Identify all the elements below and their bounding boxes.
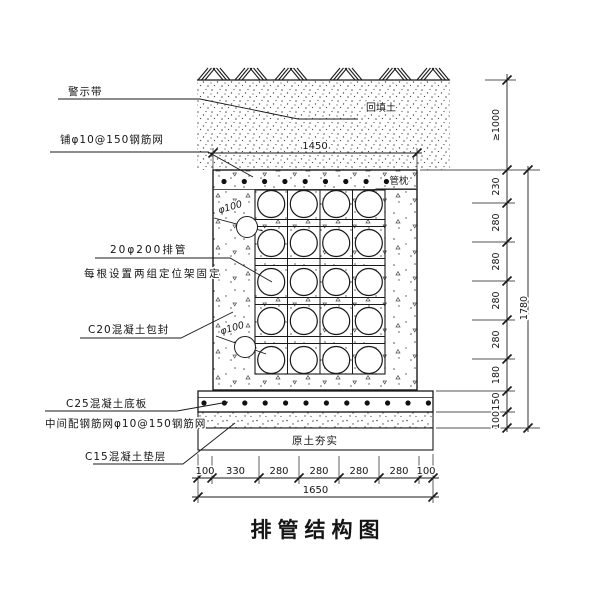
label-pipe-pillow: 管枕 [389,175,409,187]
label-pipes-line1: 20φ200排管 [110,243,187,256]
dim-right-5: 180 [491,366,502,384]
pipe-circle [258,230,285,257]
pipe-circle [258,191,285,218]
label-pipes-line2: 每根设置两组定位架固定 [84,267,222,280]
rebar-dot [283,400,288,405]
rebar-dot [324,400,329,405]
pipe-circle [355,191,382,218]
backfill-area [197,80,450,170]
dim-right-2: 280 [491,252,502,270]
drawing-page: 回填土 1450 管枕 φ100 φ100 原土夯实 [0,0,600,600]
pipe-circle [355,269,382,296]
dimensions-bottom: 100 330 280 280 280 280 100 1650 [192,454,439,503]
phi100-circle-1 [237,217,258,238]
dim-bottom-2: 280 [269,466,288,477]
pipe-circle [290,191,317,218]
dim-right-7: 100 [491,411,502,429]
rebar-dot [242,179,247,184]
pipe-circle [290,269,317,296]
rebar-dot [323,179,328,184]
rebar-dot [426,400,431,405]
rebar-dot [343,179,348,184]
pipe-circle [323,308,350,335]
pipe-bank-structure-drawing: 回填土 1450 管枕 φ100 φ100 原土夯实 [0,0,600,600]
ground-hatch-symbol [198,68,230,80]
rebar-dot [365,400,370,405]
dim-right-1: 280 [491,213,502,231]
label-encasement: C20混凝土包封 [88,323,169,336]
cushion-layer [198,412,433,428]
ground-hatch-symbol [417,68,449,80]
rebar-dot [364,179,369,184]
rebar-dot [385,400,390,405]
dim-right-0: 230 [491,177,502,195]
rebar-dot [263,400,268,405]
rebar-dot [344,400,349,405]
ground-hatch-symbol [235,68,267,80]
dim-right-6: 150 [491,392,502,410]
rebar-dot [405,400,410,405]
label-top-mesh: 铺φ10@150钢筋网 [60,133,164,146]
foundation-layers: 原土夯实 [198,391,433,450]
dim-right-3: 280 [491,291,502,309]
base-slab [198,391,433,412]
pipe-circle [323,230,350,257]
dim-right-cover: ≥1000 [491,109,502,141]
pipe-grid [255,190,385,374]
pipe-circle [258,308,285,335]
pipe-circle [323,347,350,374]
rebar-dot [201,400,206,405]
pipe-circle [355,347,382,374]
rebar-dot [384,179,389,184]
label-base-slab: C25混凝土底板 [66,397,147,410]
dim-bottom-0: 100 [195,466,214,477]
pipe-circle [290,230,317,257]
pipe-circle [355,230,382,257]
pipe-circle [290,347,317,374]
pipe-circle [323,191,350,218]
rebar-dot [221,179,226,184]
pipe-circle [355,308,382,335]
ground-hatch-symbol [330,68,362,80]
label-slab-mesh: 中间配钢筋网φ10@150钢筋网 [45,417,206,430]
dim-bottom-4: 280 [349,466,368,477]
phi100-circle-2 [235,337,256,358]
ground-hatch-symbol [275,68,307,80]
dim-bottom-5: 280 [389,466,408,477]
label-compacted-soil: 原土夯实 [292,434,338,447]
dim-bottom-total: 1650 [303,485,328,496]
label-backfill: 回填土 [366,101,396,114]
label-cushion: C15混凝土垫层 [85,450,166,463]
rebar-dot [282,179,287,184]
rebar-dot [262,179,267,184]
dim-bottom-3: 280 [309,466,328,477]
dim-top-width-value: 1450 [302,141,327,152]
ground-hatch-symbol [379,68,411,80]
pipe-circle [323,269,350,296]
rebar-dot [303,400,308,405]
drawing-title: 排管结构图 [251,518,386,542]
ground-hatch-row [198,68,449,80]
pipe-circle [290,308,317,335]
pipe-circle [258,347,285,374]
rebar-dot [303,179,308,184]
label-warning-tape: 警示带 [68,85,103,98]
dim-bottom-1: 330 [226,466,245,477]
dim-right-total: 1780 [519,296,530,320]
dim-bottom-6: 100 [416,466,435,477]
dim-right-4: 280 [491,330,502,348]
rebar-dot [242,400,247,405]
